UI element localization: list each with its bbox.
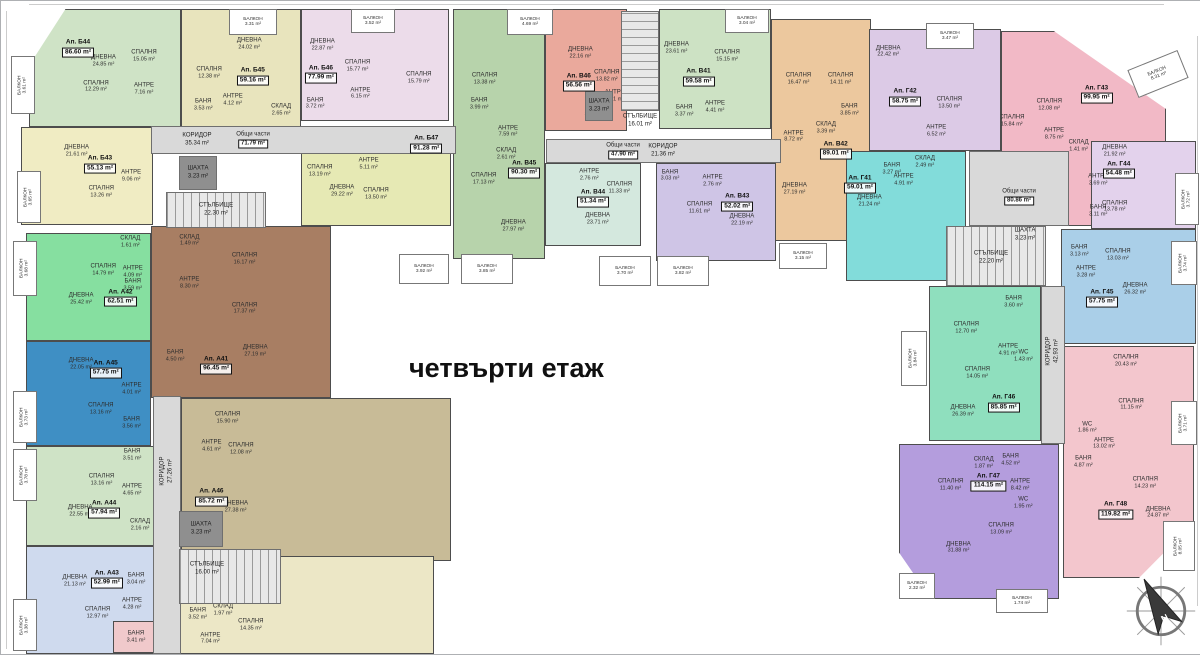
room-label: СПАЛНЯ15.15 m² <box>714 49 739 62</box>
room-label: СКЛАД1.97 m² <box>213 603 233 616</box>
balcony-label: БАЛКОН3.70 m² <box>615 266 634 277</box>
room-label: ДНЕВНА27.19 m² <box>243 344 268 357</box>
room-label: АНТРЕ7.04 m² <box>200 632 220 645</box>
room-label: ДНЕВНА26.32 m² <box>1123 282 1148 295</box>
room-label: СКЛАД2.49 m² <box>915 156 935 169</box>
balcony-label: БАЛКОН3.52 m² <box>363 16 382 27</box>
room-label: СКЛАД3.39 m² <box>816 121 836 134</box>
room-label: АНТРЕ8.30 m² <box>179 276 199 289</box>
balcony: БАЛКОН3.65 m² <box>17 171 41 223</box>
apartment-label: Ап. Б4486.60 m² <box>62 39 94 58</box>
room-label: БАНЯ4.87 m² <box>1074 455 1093 468</box>
room-label: СПАЛНЯ17.13 m² <box>471 172 496 185</box>
room-label: АНТРЕ8.42 m² <box>1010 478 1030 491</box>
room-label: СКЛАД1.49 m² <box>179 234 199 247</box>
balcony-label: БАЛКОН8.05 m² <box>1174 536 1185 555</box>
balcony: БАЛКОН3.85 m² <box>461 254 513 284</box>
room-label: ДНЕВНА27.19 m² <box>782 183 807 196</box>
room-label: АНТРЕ3.28 m² <box>1076 265 1096 278</box>
apartment-label: Ап. Б4677.99 m² <box>305 64 337 83</box>
staircase-area <box>179 549 281 604</box>
balcony-label: БАЛКОН3.68 m² <box>20 259 31 278</box>
room-label: БАНЯ3.04 m² <box>127 572 146 585</box>
room-label: АНТРЕ4.28 m² <box>122 598 142 611</box>
balcony-label: БАЛКОН8.31 m² <box>1147 65 1169 82</box>
balcony: БАЛКОН3.78 m² <box>13 449 37 501</box>
balcony-label: БАЛКОН3.38 m² <box>20 615 31 634</box>
apartment-label: Ап. Б4559.16 m² <box>237 67 269 86</box>
room-label: СПАЛНЯ15.90 m² <box>215 412 240 425</box>
room-label: АНТРЕ4.09 m² <box>123 266 143 279</box>
balcony: БАЛКОН3.74 m² <box>1171 241 1197 285</box>
balcony-label: БАЛКОН3.04 m² <box>737 16 756 27</box>
room-label: АНТРЕ4.41 m² <box>705 100 725 113</box>
room-label: СКЛАД1.61 m² <box>120 236 140 249</box>
room-label: АНТРЕ4.01 m² <box>122 383 142 396</box>
apartment-label: Ап. Г4399.95 m² <box>1081 84 1113 103</box>
apartment-label: Ап. В4159.58 m² <box>682 68 714 87</box>
balcony-label: БАЛКОН4.69 m² <box>520 17 539 28</box>
apartment-label: Ап. Г4258.75 m² <box>889 88 921 107</box>
room-label: СПАЛНЯ13.19 m² <box>307 164 332 177</box>
room-label: СПАЛНЯ13.50 m² <box>363 187 388 200</box>
room-label: СПАЛНЯ13.03 m² <box>1105 248 1130 261</box>
room-label: СКЛАД2.16 m² <box>130 519 150 532</box>
room-label: СКЛАД2.65 m² <box>271 103 291 116</box>
balcony-label: БАЛКОН3.82 m² <box>673 266 692 277</box>
balcony-label: БАЛКОН3.47 m² <box>940 31 959 42</box>
balcony: БАЛКОН3.82 m² <box>657 256 709 286</box>
room-label: АНТРЕ9.06 m² <box>121 169 141 182</box>
room-label: АНТРЕ13.02 m² <box>1093 437 1115 450</box>
balcony-label: БАЛКОН3.78 m² <box>20 465 31 484</box>
apartment-label: Ап. Г48119.82 m² <box>1098 501 1133 520</box>
room-label: АНТРЕ6.52 m² <box>926 124 946 137</box>
common-area-label: ШАХТА3.23 m² <box>191 522 212 537</box>
apartment-label: Ап. В4289.01 m² <box>820 140 852 159</box>
room-label: АНТРЕ4.61 m² <box>201 439 221 452</box>
room-label: АНТРЕ4.12 m² <box>223 94 243 107</box>
apartment-label: Ап. Г47114.15 m² <box>971 472 1006 491</box>
balcony-label: БАЛКОН1.74 m² <box>1012 596 1031 607</box>
room-label: БАНЯ3.13 m² <box>1070 245 1089 258</box>
room-label: СПАЛНЯ12.97 m² <box>85 606 110 619</box>
room-label: БАНЯ4.50 m² <box>166 350 185 363</box>
floor-title: четвърти етаж <box>409 353 604 384</box>
balcony: БАЛКОН3.38 m² <box>13 599 37 651</box>
room-label: БАНЯ3.99 m² <box>470 98 489 111</box>
balcony-label: БАЛКОН3.73 m² <box>20 407 31 426</box>
common-area-label: КОРИДОР21.36 m² <box>648 144 677 159</box>
common-area-label: СТЪЛБИЩЕ22.30 m² <box>199 203 233 218</box>
room-label: АНТРЕ7.59 m² <box>498 125 518 138</box>
balcony: БАЛКОН8.31 m² <box>1127 50 1188 98</box>
apartment-label: Ап. Г4159.01 m² <box>844 175 876 194</box>
apartment-label: Ап. А4196.45 m² <box>200 355 232 374</box>
room-label: СПАЛНЯ13.50 m² <box>937 97 962 110</box>
room-label: СКЛАД1.41 m² <box>1069 139 1089 152</box>
apartment-В45: СПАЛНЯ13.38 m²БАНЯ3.99 m²АНТРЕ7.59 m²СКЛ… <box>453 9 545 259</box>
common-area-label: СТЪЛБИЩЕ16.01 m² <box>623 114 657 129</box>
room-label: СПАЛНЯ14.35 m² <box>238 619 263 632</box>
balcony: БАЛКОН3.70 m² <box>599 256 651 286</box>
room-label: БАНЯ3.51 m² <box>123 448 142 461</box>
apartment-label: Ап. Г4685.85 m² <box>988 394 1020 413</box>
apartment-label: Ап. В4590.30 m² <box>508 159 540 178</box>
common-area-label: КОРИДОР42.93 m² <box>1046 336 1061 365</box>
floor-plan: четвърти етаж N ДНЕВНА24.85 m²СПАЛНЯ15.0… <box>0 0 1200 655</box>
room-label: СПАЛНЯ13.16 m² <box>89 474 114 487</box>
room-label: БАНЯ3.03 m² <box>661 169 680 182</box>
room-label: ДНЕВНА25.42 m² <box>69 292 94 305</box>
balcony: БАЛКОН4.69 m² <box>507 9 553 35</box>
room-label: АНТРЕ2.76 m² <box>702 175 722 188</box>
room-label: ДНЕВНА24.85 m² <box>91 54 116 67</box>
room-label: WC1.43 m² <box>1014 349 1033 362</box>
balcony: БАЛКОН2.32 m² <box>899 573 935 599</box>
balcony: БАЛКОН8.05 m² <box>1163 521 1195 571</box>
common-area-label: СТЪЛБИЩЕ22.20 m² <box>974 251 1008 266</box>
room-label: СПАЛНЯ14.23 m² <box>1133 476 1158 489</box>
common-area-label: КОРИДОР27.26 m² <box>160 456 175 485</box>
apartment-label: Ап. А4557.75 m² <box>90 359 122 378</box>
room-label: СПАЛНЯ12.08 m² <box>1037 99 1062 112</box>
common-area-label: СТЪЛБИЩЕ16.00 m² <box>190 562 224 577</box>
balcony: БАЛКОН3.04 m² <box>725 9 769 33</box>
room-label: СПАЛНЯ13.26 m² <box>89 186 114 199</box>
balcony-label: БАЛКОН3.71 m² <box>1179 413 1190 432</box>
room-label: СПАЛНЯ12.29 m² <box>83 80 108 93</box>
balcony-label: БАЛКОН3.84 m² <box>909 349 920 368</box>
room-label: АНТРЕ4.65 m² <box>122 484 142 497</box>
room-label: СПАЛНЯ14.11 m² <box>828 73 853 86</box>
room-label: СПАЛНЯ13.38 m² <box>472 73 497 86</box>
room-label: БАНЯ3.85 m² <box>840 104 859 117</box>
balcony-label: БАЛКОН2.32 m² <box>907 581 926 592</box>
room-label: СКЛАД1.87 m² <box>974 457 994 470</box>
room-label: СПАЛНЯ11.40 m² <box>938 478 963 491</box>
room-label: СПАЛНЯ15.84 m² <box>999 114 1024 127</box>
room-label: БАНЯ3.60 m² <box>1004 296 1023 309</box>
room-label: СПАЛНЯ16.17 m² <box>232 253 257 266</box>
room-label: СПАЛНЯ12.70 m² <box>954 322 979 335</box>
balcony: БАЛКОН3.92 m² <box>399 254 449 284</box>
room-label: АНТРЕ5.11 m² <box>359 158 379 171</box>
room-label: ДНЕВНА31.88 m² <box>946 541 971 554</box>
common-area-label: Общи части80.86 m² <box>1002 189 1036 206</box>
room-label: СПАЛНЯ16.47 m² <box>786 73 811 86</box>
common-area-label: ШАХТА3.23 m² <box>1015 228 1036 243</box>
room-label: ДНЕВНА27.97 m² <box>501 219 526 232</box>
room-label: ДНЕВНА22.42 m² <box>876 45 901 58</box>
room-label: ДНЕВНА23.61 m² <box>664 41 689 54</box>
room-label: ДНЕВНА22.16 m² <box>568 47 593 60</box>
room-label: ДНЕВНА23.71 m² <box>585 212 610 225</box>
apartment-label: Ап. А4262.51 m² <box>104 288 136 307</box>
room-label: ДНЕВНА26.39 m² <box>951 404 976 417</box>
balcony-label: БАЛКОН3.61 m² <box>18 75 29 94</box>
room-label: АНТРЕ8.72 m² <box>784 130 804 143</box>
room-label: ДНЕВНА29.22 m² <box>330 184 355 197</box>
balcony: БАЛКОН3.72 m² <box>1175 173 1199 225</box>
balcony: БАЛКОН3.73 m² <box>13 391 37 443</box>
room-label: БАНЯ3.37 m² <box>675 105 694 118</box>
balcony-label: БАЛКОН3.15 m² <box>793 251 812 262</box>
balcony: БАЛКОН3.61 m² <box>11 56 35 114</box>
apartment-В43: АНТРЕ2.76 m²БАНЯ3.03 m²СПАЛНЯ11.61 m²ДНЕ… <box>656 163 776 261</box>
common-area-label: ШАХТА3.23 m² <box>589 99 610 114</box>
dimension-line-top <box>29 4 1164 5</box>
balcony: БАЛКОН3.15 m² <box>779 243 827 269</box>
room-label: БАНЯ3.72 m² <box>306 97 325 110</box>
room-label: СПАЛНЯ12.38 m² <box>196 66 221 79</box>
common-area-label: ШАХТА3.23 m² <box>188 166 209 181</box>
apartment-label: Ап. А4685.72 m² <box>195 488 227 507</box>
apartment-А45: ДНЕВНА22.05 m²СПАЛНЯ13.16 m²АНТРЕ4.01 m²… <box>26 341 151 446</box>
room-label: СПАЛНЯ11.61 m² <box>687 202 712 215</box>
balcony-label: БАЛКОН3.85 m² <box>477 264 496 275</box>
apartment-label: Ап. Б4791.28 m² <box>410 135 442 154</box>
compass-rose-icon: N <box>1123 573 1199 649</box>
apartment-label: Ап. В4451.34 m² <box>577 189 609 208</box>
room-label: БАНЯ3.53 m² <box>194 99 213 112</box>
room-label: ДНЕВНА21.24 m² <box>857 194 882 207</box>
room-label: WC1.95 m² <box>1014 497 1033 510</box>
apartment-А42: СКЛАД1.61 m²СПАЛНЯ14.79 m²ДНЕВНА25.42 m²… <box>26 233 151 341</box>
balcony: БАЛКОН3.68 m² <box>13 241 37 296</box>
balcony: БАЛКОН3.31 m² <box>229 9 277 35</box>
room-label: СПАЛНЯ13.16 m² <box>88 402 113 415</box>
room-label: БАНЯ3.41 m² <box>127 630 146 643</box>
common-area-label: Общи части71.79 m² <box>236 132 270 149</box>
room-label: СПАЛНЯ15.79 m² <box>406 72 431 85</box>
room-label: АНТРЕ2.76 m² <box>579 169 599 182</box>
room-label: ДНЕВНА22.19 m² <box>730 213 755 226</box>
room-label: СПАЛНЯ20.43 m² <box>1113 354 1138 367</box>
balcony-label: БАЛКОН3.74 m² <box>1179 253 1190 272</box>
balcony-label: БАЛКОН3.72 m² <box>1182 189 1193 208</box>
room-label: ДНЕВНА36.18 m² <box>1110 54 1135 67</box>
room-label: СПАЛНЯ15.05 m² <box>131 50 156 63</box>
apartment-label: Ап. В4352.02 m² <box>721 193 753 212</box>
common-area-label: КОРИДОР35.34 m² <box>182 133 211 148</box>
room-label: АНТРЕ7.16 m² <box>134 82 154 95</box>
apartment-Г46: СПАЛНЯ12.70 m²БАНЯ3.60 m²АНТРЕ4.91 m²WC1… <box>929 286 1041 441</box>
apartment-label: Ап. А4457.94 m² <box>88 499 120 518</box>
room-label: ДНЕВНА24.87 m² <box>1146 506 1171 519</box>
room-label: СПАЛНЯ17.37 m² <box>232 302 257 315</box>
room-label: БАНЯ3.56 m² <box>122 417 141 430</box>
room-label: БАНЯ4.52 m² <box>1001 454 1020 467</box>
balcony: БАЛКОН3.84 m² <box>901 331 927 386</box>
apartment-А44: БАНЯ3.51 m²СПАЛНЯ13.16 m²АНТРЕ4.65 m²ДНЕ… <box>26 446 161 546</box>
room-label: БАНЯ3.52 m² <box>188 607 207 620</box>
staircase-area <box>621 11 659 111</box>
apartment-label: Ап. Г4557.75 m² <box>1086 288 1118 307</box>
room-label: СПАЛНЯ12.08 m² <box>228 442 253 455</box>
balcony-label: БАЛКОН3.92 m² <box>414 264 433 275</box>
balcony: БАЛКОН3.52 m² <box>351 9 395 33</box>
apartment-label: Ап. А4352.99 m² <box>91 569 123 588</box>
room-label: СПАЛНЯ13.09 m² <box>988 523 1013 536</box>
corridor-area <box>153 396 181 654</box>
room-label: БАНЯ3.11 m² <box>1089 204 1107 217</box>
balcony: БАЛКОН3.47 m² <box>926 23 974 49</box>
room-label: АНТРЕ6.15 m² <box>350 87 370 100</box>
room-label: СПАЛНЯ14.79 m² <box>91 263 116 276</box>
balcony: БАЛКОН1.74 m² <box>996 589 1048 613</box>
apartment-label: Ап. В4656.56 m² <box>563 73 595 92</box>
apartment-А41: СКЛАД1.49 m²СПАЛНЯ16.17 m²АНТРЕ8.30 m²СП… <box>151 226 331 398</box>
apartment-Б44: ДНЕВНА24.85 m²СПАЛНЯ15.05 m²СПАЛНЯ12.29 … <box>29 9 181 127</box>
room-label: ДНЕВНА24.02 m² <box>237 37 262 50</box>
common-area-label: Общи части47.90 m² <box>606 143 640 160</box>
balcony: БАЛКОН3.71 m² <box>1171 401 1197 445</box>
apartment-label: Ап. Б4355.13 m² <box>84 155 116 174</box>
room-label: ДНЕВНА22.87 m² <box>310 39 335 52</box>
apartment-В44: АНТРЕ2.76 m²СПАЛНЯ11.33 m²ДНЕВНА23.71 m²… <box>545 163 641 246</box>
room-label: СПАЛНЯ13.82 m² <box>594 69 619 82</box>
dimension-line-right <box>1197 36 1198 606</box>
room-label: WC1.86 m² <box>1078 421 1097 434</box>
balcony-label: БАЛКОН3.31 m² <box>243 17 262 28</box>
room-label: АНТРЕ4.91 m² <box>894 174 914 187</box>
room-label: ДНЕВНА21.13 m² <box>63 574 88 587</box>
room-label: СПАЛНЯ11.33 m² <box>607 182 632 195</box>
room-label: ДНЕВНА21.92 m² <box>1102 145 1127 158</box>
balcony-label: БАЛКОН3.65 m² <box>24 187 35 206</box>
room-label: СПАЛНЯ11.15 m² <box>1118 398 1143 411</box>
dimension-line-left <box>6 11 7 649</box>
room-label: СПАЛНЯ14.05 m² <box>965 366 990 379</box>
room-label: АНТРЕ8.75 m² <box>1044 128 1064 141</box>
room-label: СПАЛНЯ15.77 m² <box>345 59 370 72</box>
apartment-label: Ап. Г4454.48 m² <box>1103 160 1135 179</box>
